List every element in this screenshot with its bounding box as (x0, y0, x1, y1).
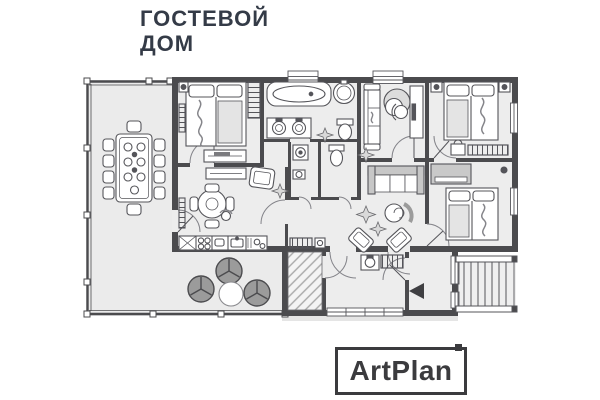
boiler-icon (315, 238, 325, 248)
jar-icon (260, 244, 265, 249)
lounge-chair-icon (216, 258, 242, 284)
chair-icon (103, 155, 114, 167)
small-sink-icon (293, 170, 305, 179)
radiator-icon (381, 255, 403, 268)
chair-icon (226, 197, 234, 211)
floor-plan (0, 0, 600, 400)
chair-icon (154, 187, 165, 199)
sofa-icon (368, 166, 424, 194)
sofa-icon (364, 84, 380, 150)
page: ГОСТЕВОЙ ДОМ (0, 0, 600, 400)
tv-console-icon (204, 150, 246, 162)
armchair-icon (249, 166, 276, 189)
chair-icon (103, 171, 114, 183)
washbasin-icon (361, 255, 379, 270)
chair-icon (127, 121, 141, 132)
chair-icon (127, 204, 141, 215)
person-icon (222, 212, 231, 221)
entrance-hall (361, 255, 403, 270)
logo: ArtPlan (335, 347, 467, 395)
vestibule-hatch (288, 252, 322, 310)
wardrobe-icon (248, 82, 260, 118)
wardrobe-icon (431, 164, 471, 184)
office-chair-icon (395, 106, 408, 119)
chair-icon (103, 139, 114, 151)
appliance-icon (215, 239, 224, 246)
chair-icon (190, 197, 198, 211)
coffee-table-icon (219, 282, 243, 306)
nightstand-icon (499, 82, 510, 92)
toilet-icon (337, 119, 353, 140)
double-sink-icon (267, 118, 311, 138)
bed-icon (444, 82, 498, 140)
shadow (282, 316, 458, 321)
chair-icon (154, 171, 165, 183)
radiator-icon (179, 104, 185, 132)
bed-icon (186, 82, 246, 146)
logo-corner-square (455, 344, 462, 351)
corridor (290, 238, 325, 248)
lounge-chair-icon (244, 280, 270, 306)
lamp-icon (501, 167, 507, 173)
chair-icon (103, 187, 114, 199)
jar-icon (254, 239, 260, 245)
chair-icon (154, 139, 165, 151)
stairs-floor (458, 256, 516, 312)
chair-icon (205, 220, 219, 228)
tv-console-icon (206, 168, 246, 179)
toilet-icon (329, 145, 344, 166)
radiator-icon (468, 145, 508, 155)
radiator-icon (179, 198, 185, 228)
bed-icon (446, 188, 498, 240)
dining-table-icon (116, 134, 152, 202)
chair-icon (205, 184, 219, 192)
kitchen-counter-icon (179, 236, 267, 250)
kitchen-sink-icon (231, 237, 251, 248)
bathtub-icon (267, 82, 331, 106)
lounge-chair-icon (188, 276, 214, 302)
washing-machine-icon (293, 145, 308, 160)
chair-icon (154, 155, 165, 167)
nightstand-icon (179, 82, 188, 92)
pouf-icon (385, 204, 404, 222)
logo-text: ArtPlan (349, 355, 452, 387)
vestibule (288, 252, 322, 310)
radiator-icon (290, 238, 312, 248)
nightstand-icon (431, 82, 442, 92)
